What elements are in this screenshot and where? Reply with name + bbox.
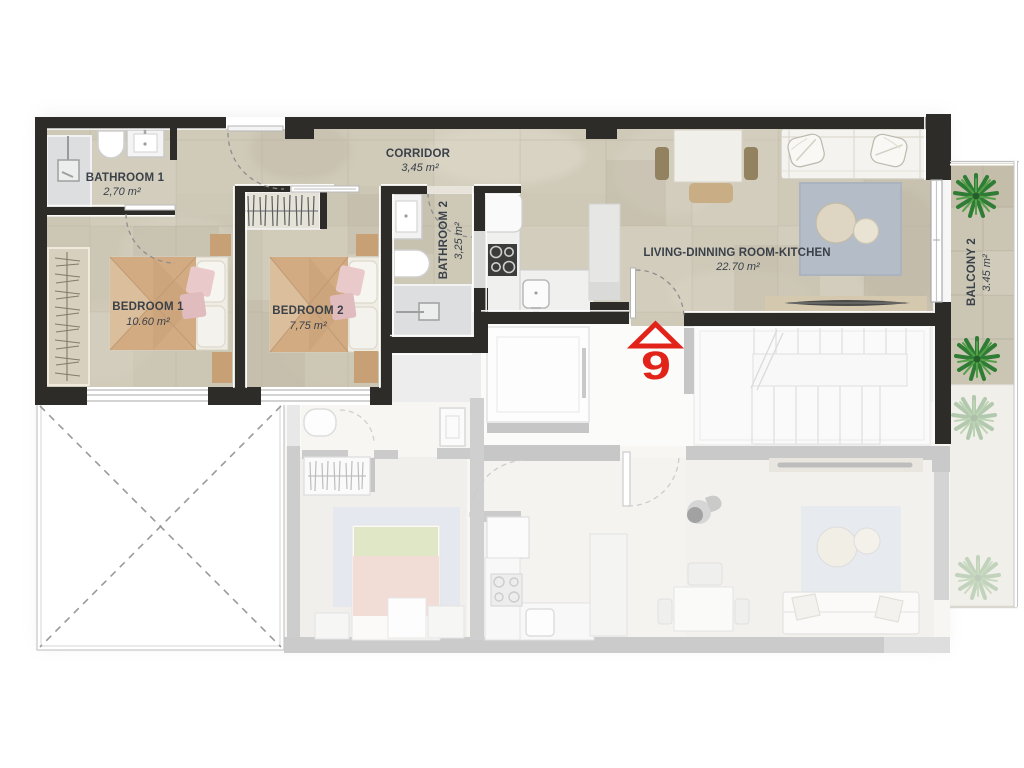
svg-text:BATHROOM 1: BATHROOM 1	[86, 172, 165, 184]
svg-text:7,75 m²: 7,75 m²	[289, 320, 327, 332]
svg-text:BALCONY 2: BALCONY 2	[966, 238, 978, 306]
svg-text:9: 9	[641, 344, 671, 389]
svg-text:CORRIDOR: CORRIDOR	[386, 148, 451, 160]
svg-text:BEDROOM 2: BEDROOM 2	[272, 305, 343, 317]
svg-text:LIVING-DINNING ROOM-KITCHEN: LIVING-DINNING ROOM-KITCHEN	[643, 247, 830, 259]
svg-text:3,25 m²: 3,25 m²	[453, 222, 465, 260]
svg-text:BEDROOM 1: BEDROOM 1	[112, 301, 184, 313]
svg-text:2,70 m²: 2,70 m²	[102, 186, 141, 198]
svg-text:10.60 m²: 10.60 m²	[126, 316, 170, 328]
svg-text:3,45 m²: 3,45 m²	[401, 162, 439, 174]
svg-text:3.45 m²: 3.45 m²	[981, 254, 993, 292]
svg-text:BATHROOM 2: BATHROOM 2	[438, 201, 450, 279]
svg-text:22.70 m²: 22.70 m²	[715, 261, 760, 273]
